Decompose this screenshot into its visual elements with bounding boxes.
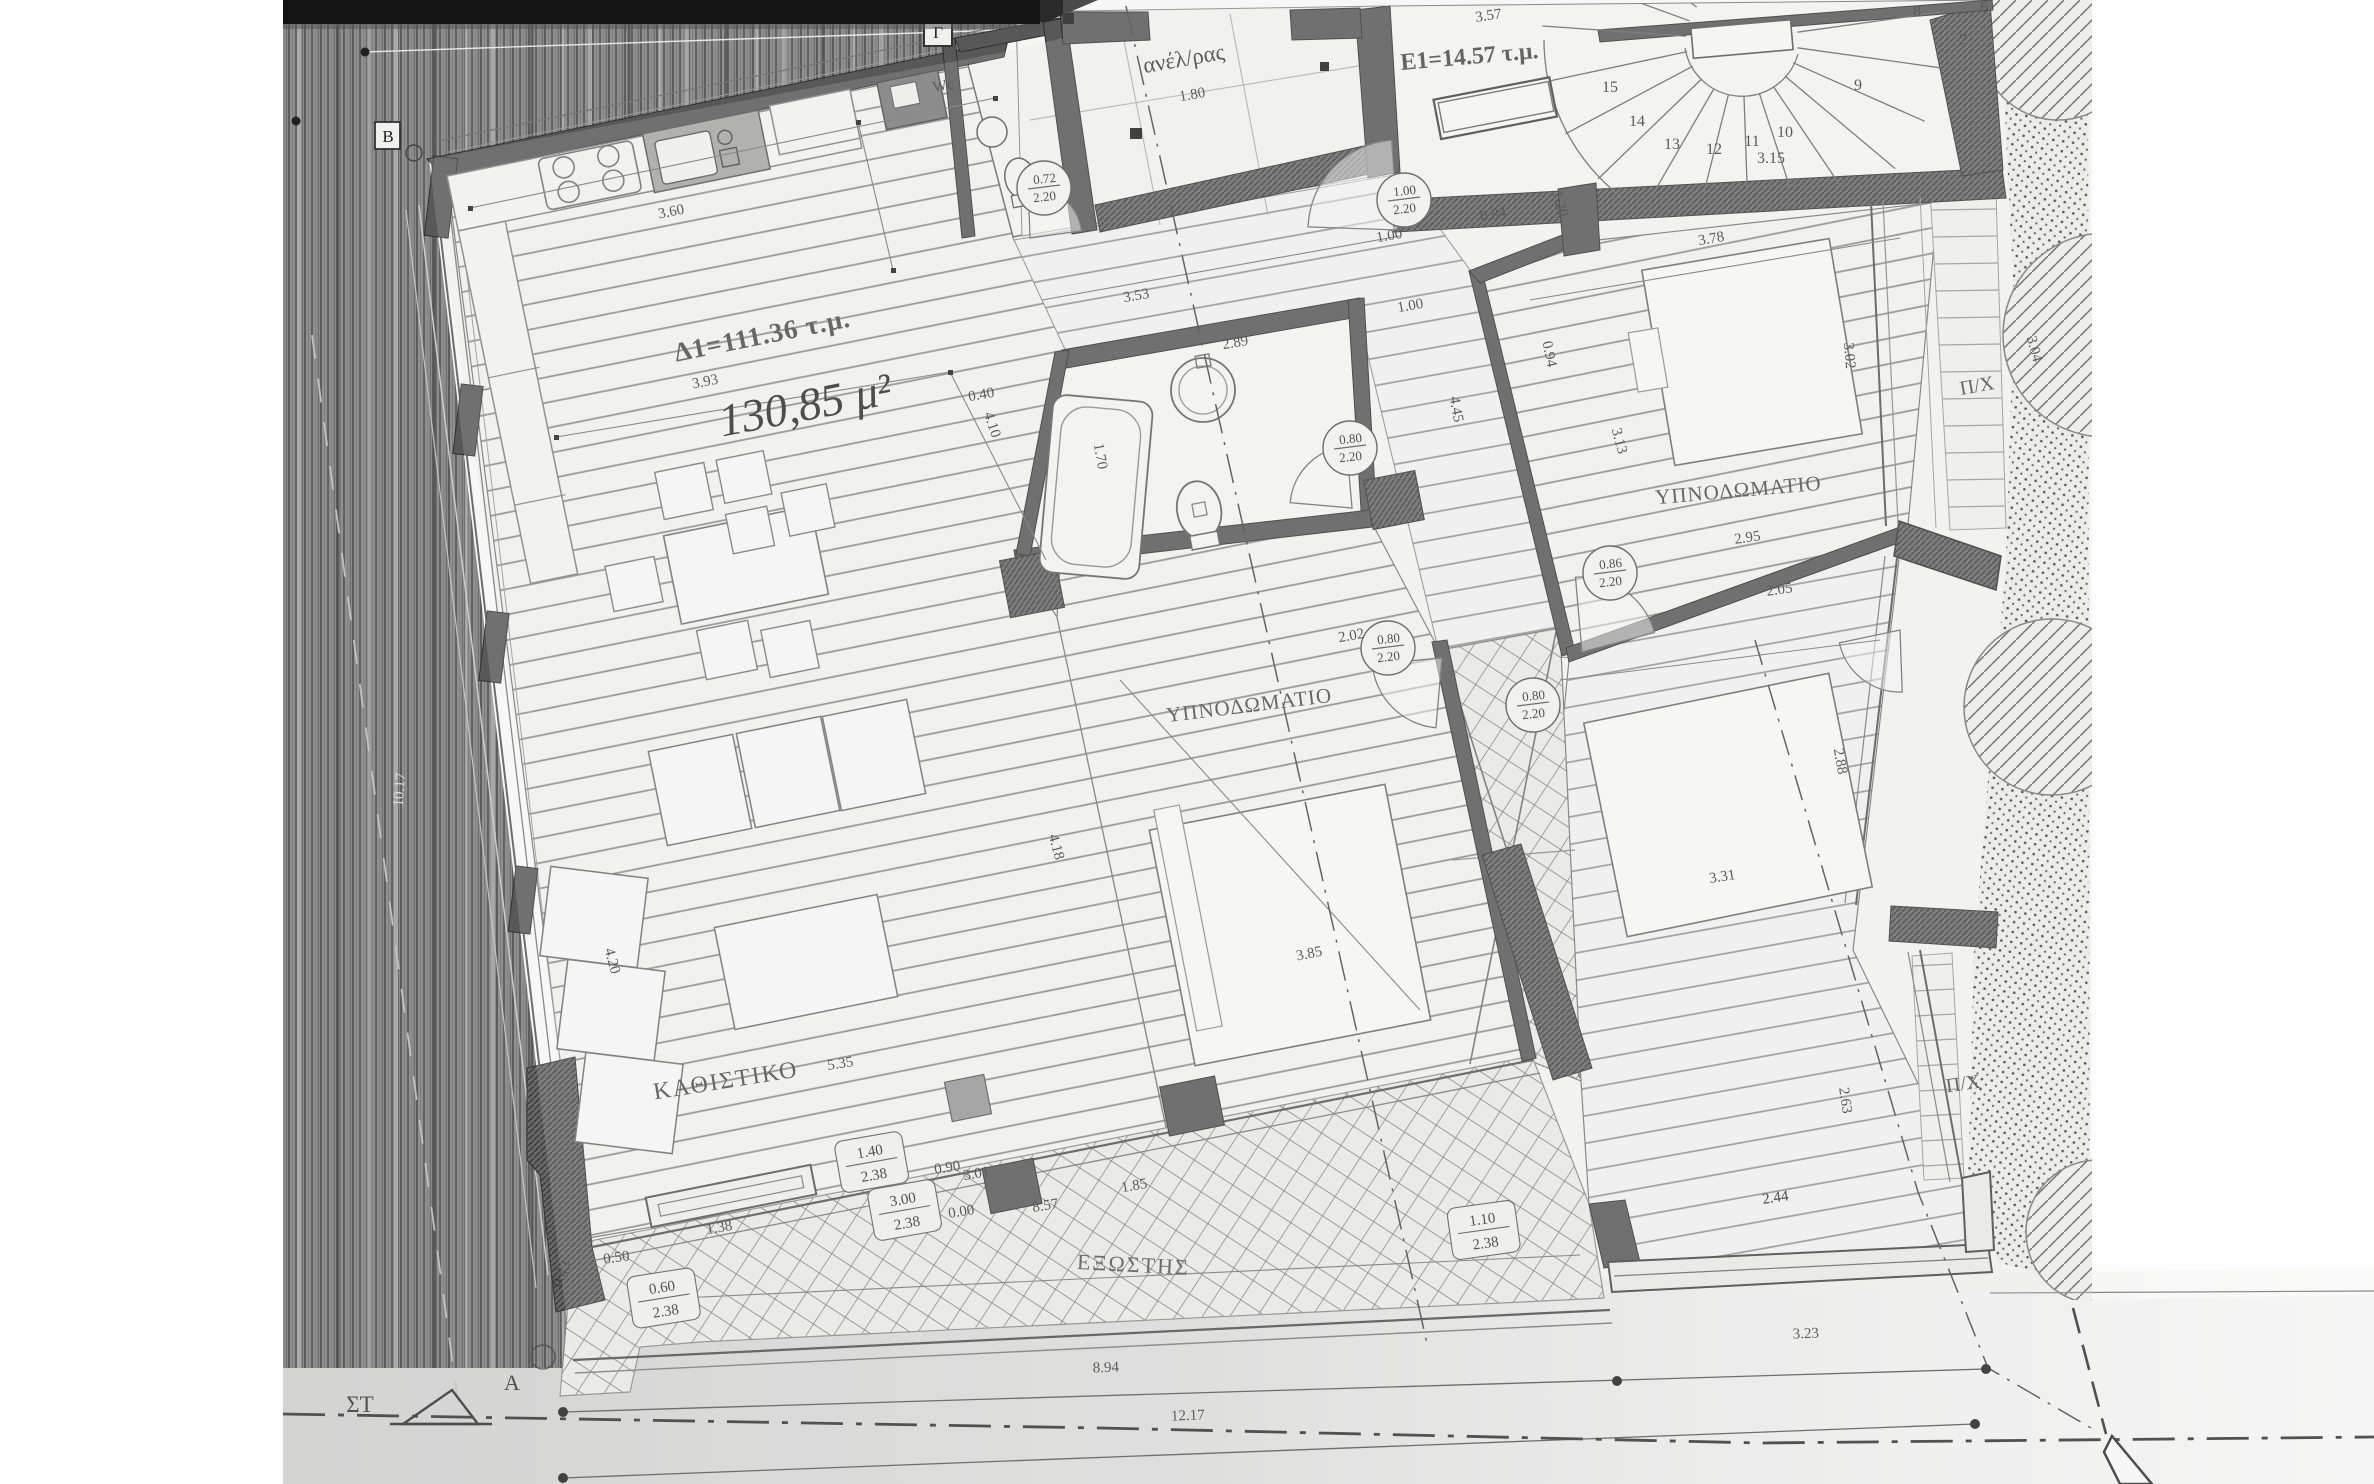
svg-text:10.17: 10.17 — [391, 772, 410, 808]
svg-text:B: B — [382, 127, 393, 146]
